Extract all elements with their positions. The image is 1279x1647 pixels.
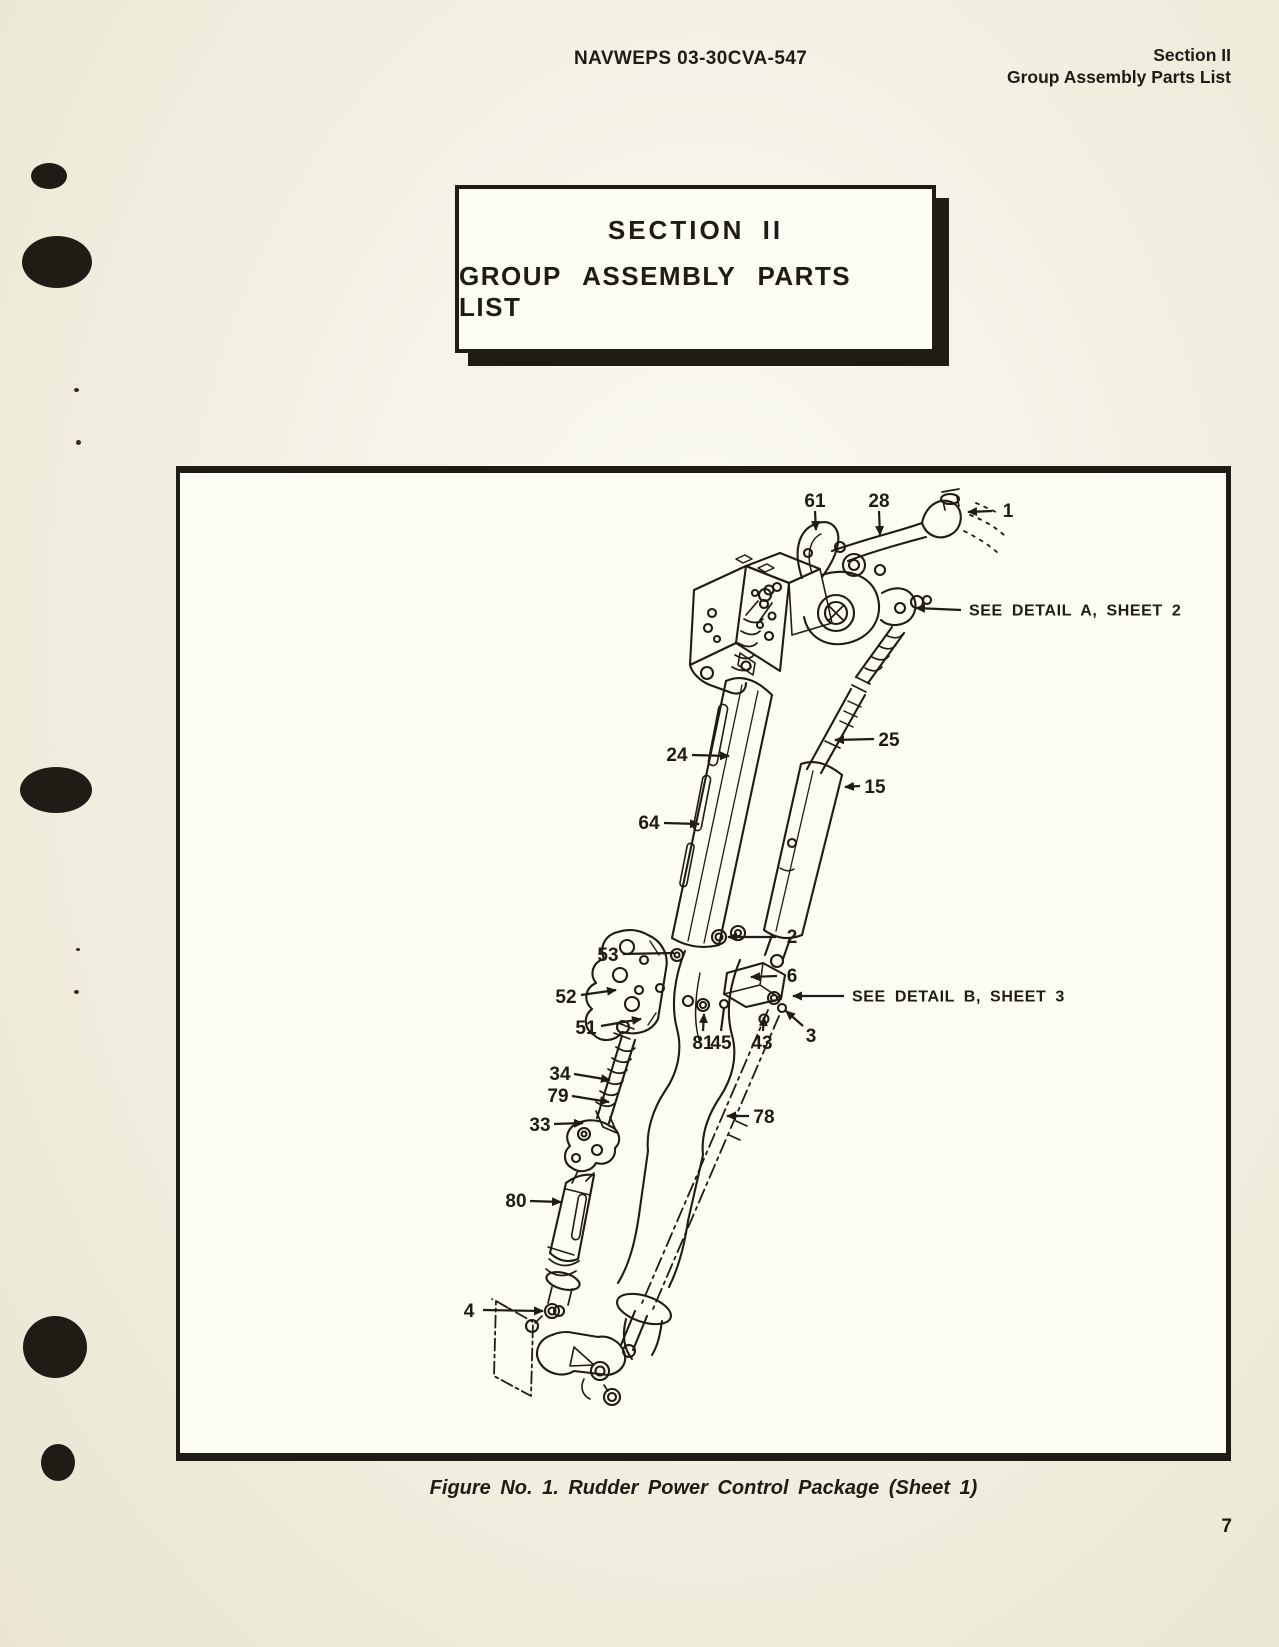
detail-note-see-detail-a-sheet-2: SEE DETAIL A, SHEET 2 <box>916 603 1181 620</box>
figure-caption: Figure No. 1. Rudder Power Control Packa… <box>176 1477 1231 1500</box>
binding-mark <box>41 1444 75 1481</box>
leader-line <box>574 1074 610 1080</box>
leader-line <box>786 1011 803 1026</box>
callout-25: 25 <box>835 730 900 751</box>
callout-label: 6 <box>787 966 798 987</box>
ink-speck <box>76 440 81 445</box>
section-title-line2: GROUP ASSEMBLY PARTS LIST <box>459 261 932 323</box>
callout-label: SEE DETAIL B, SHEET 3 <box>852 989 1065 1006</box>
leader-line <box>815 511 816 530</box>
manual-page: NAVWEPS 03-30CVA-547 Section II Group As… <box>0 0 1279 1647</box>
section-title-line1: SECTION II <box>608 215 783 246</box>
leader-line <box>968 511 992 512</box>
page-number: 7 <box>1221 1516 1232 1538</box>
callout-label: 43 <box>751 1033 772 1054</box>
callout-label: 4 <box>464 1301 475 1322</box>
callout-label: 25 <box>878 730 900 751</box>
leader-line <box>483 1310 543 1311</box>
header-section-block: Section II Group Assembly Parts List <box>1007 44 1231 88</box>
callout-label: 61 <box>804 491 826 512</box>
binding-mark <box>23 1316 87 1378</box>
callout-label: 33 <box>529 1115 550 1136</box>
callout-28: 28 <box>868 491 889 535</box>
callout-label: 52 <box>555 987 576 1008</box>
callout-label: 15 <box>864 777 886 798</box>
figure-frame: 61281SEE DETAIL A, SHEET 224251564253525… <box>176 466 1231 1461</box>
leader-line <box>879 511 880 535</box>
callout-label: 78 <box>753 1107 774 1128</box>
callout-label: 53 <box>597 945 618 966</box>
ink-speck <box>74 388 79 392</box>
callout-label: 34 <box>549 1064 571 1085</box>
callout-label: 24 <box>666 745 688 766</box>
header-section-label: Section II <box>1007 44 1231 66</box>
callout-80: 80 <box>505 1191 561 1212</box>
leader-line <box>916 608 961 610</box>
section-title-box: SECTION II GROUP ASSEMBLY PARTS LIST <box>455 185 936 353</box>
rudder-power-control-drawing <box>492 489 1006 1405</box>
header-section-sublabel: Group Assembly Parts List <box>1007 66 1231 88</box>
leader-line <box>721 1008 724 1031</box>
callout-label: 28 <box>868 491 889 512</box>
ink-speck <box>74 990 79 994</box>
callout-label: 3 <box>806 1026 817 1047</box>
callout-label: 64 <box>638 813 660 834</box>
callout-label: 79 <box>547 1086 568 1107</box>
callout-label: 2 <box>787 927 798 948</box>
leader-line <box>835 739 874 740</box>
callout-label: SEE DETAIL A, SHEET 2 <box>969 603 1181 620</box>
leader-line <box>623 953 674 954</box>
leader-line <box>763 1017 764 1031</box>
callout-label: 51 <box>575 1018 597 1039</box>
leader-line <box>703 1014 704 1031</box>
leader-line <box>554 1123 583 1124</box>
callout-78: 78 <box>727 1107 775 1128</box>
leader-line <box>692 755 729 756</box>
callout-61: 61 <box>804 491 826 530</box>
leader-line <box>530 1201 561 1202</box>
doc-number: NAVWEPS 03-30CVA-547 <box>574 48 807 70</box>
callout-layer: 61281SEE DETAIL A, SHEET 224251564253525… <box>464 491 1182 1322</box>
binding-mark <box>31 163 67 189</box>
callout-15: 15 <box>845 777 886 798</box>
ink-speck <box>76 948 80 951</box>
detail-note-see-detail-b-sheet-3: SEE DETAIL B, SHEET 3 <box>793 989 1065 1006</box>
leader-line <box>845 786 860 787</box>
leader-line <box>664 823 699 824</box>
figure-drawing: 61281SEE DETAIL A, SHEET 224251564253525… <box>180 473 1226 1453</box>
callout-label: 1 <box>1003 501 1014 522</box>
leader-line <box>751 976 777 977</box>
callout-3: 3 <box>786 1011 816 1047</box>
callout-64: 64 <box>638 813 699 834</box>
callout-label: 45 <box>710 1033 732 1054</box>
binding-mark <box>22 236 92 288</box>
callout-label: 80 <box>505 1191 526 1212</box>
callout-1: 1 <box>968 501 1014 522</box>
binding-mark <box>20 767 92 813</box>
callout-34: 34 <box>549 1064 610 1085</box>
